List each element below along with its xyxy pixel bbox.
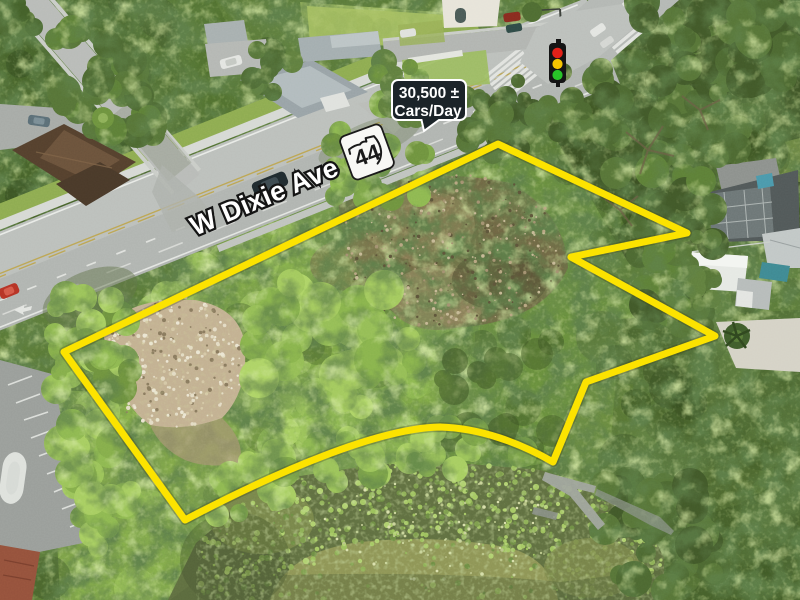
svg-text:Cars/Day: Cars/Day (394, 103, 462, 120)
svg-text:30,500 ±: 30,500 ± (399, 85, 460, 102)
